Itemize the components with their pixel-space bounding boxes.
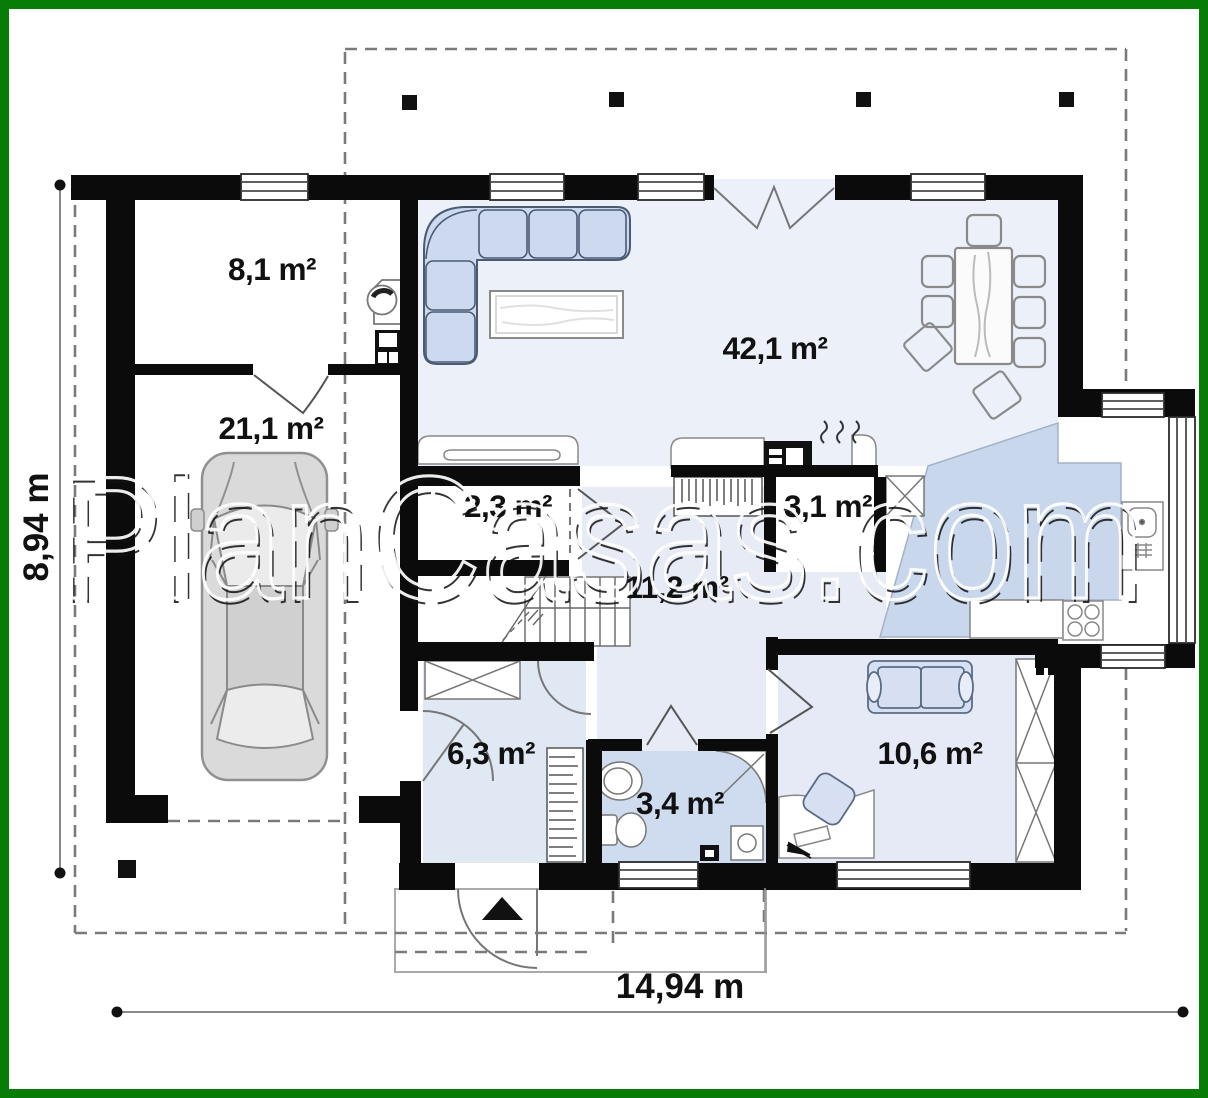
svg-text:8,1 m²: 8,1 m² bbox=[228, 251, 316, 287]
svg-text:PlanCasas.com: PlanCasas.com bbox=[59, 441, 1144, 636]
svg-text:6,3 m²: 6,3 m² bbox=[447, 735, 535, 771]
svg-text:8,94 m: 8,94 m bbox=[17, 473, 56, 582]
svg-text:3,4 m²: 3,4 m² bbox=[636, 785, 724, 821]
svg-text:14,94 m: 14,94 m bbox=[616, 967, 744, 1006]
svg-text:10,6 m²: 10,6 m² bbox=[877, 735, 982, 771]
svg-text:42,1 m²: 42,1 m² bbox=[722, 330, 827, 366]
